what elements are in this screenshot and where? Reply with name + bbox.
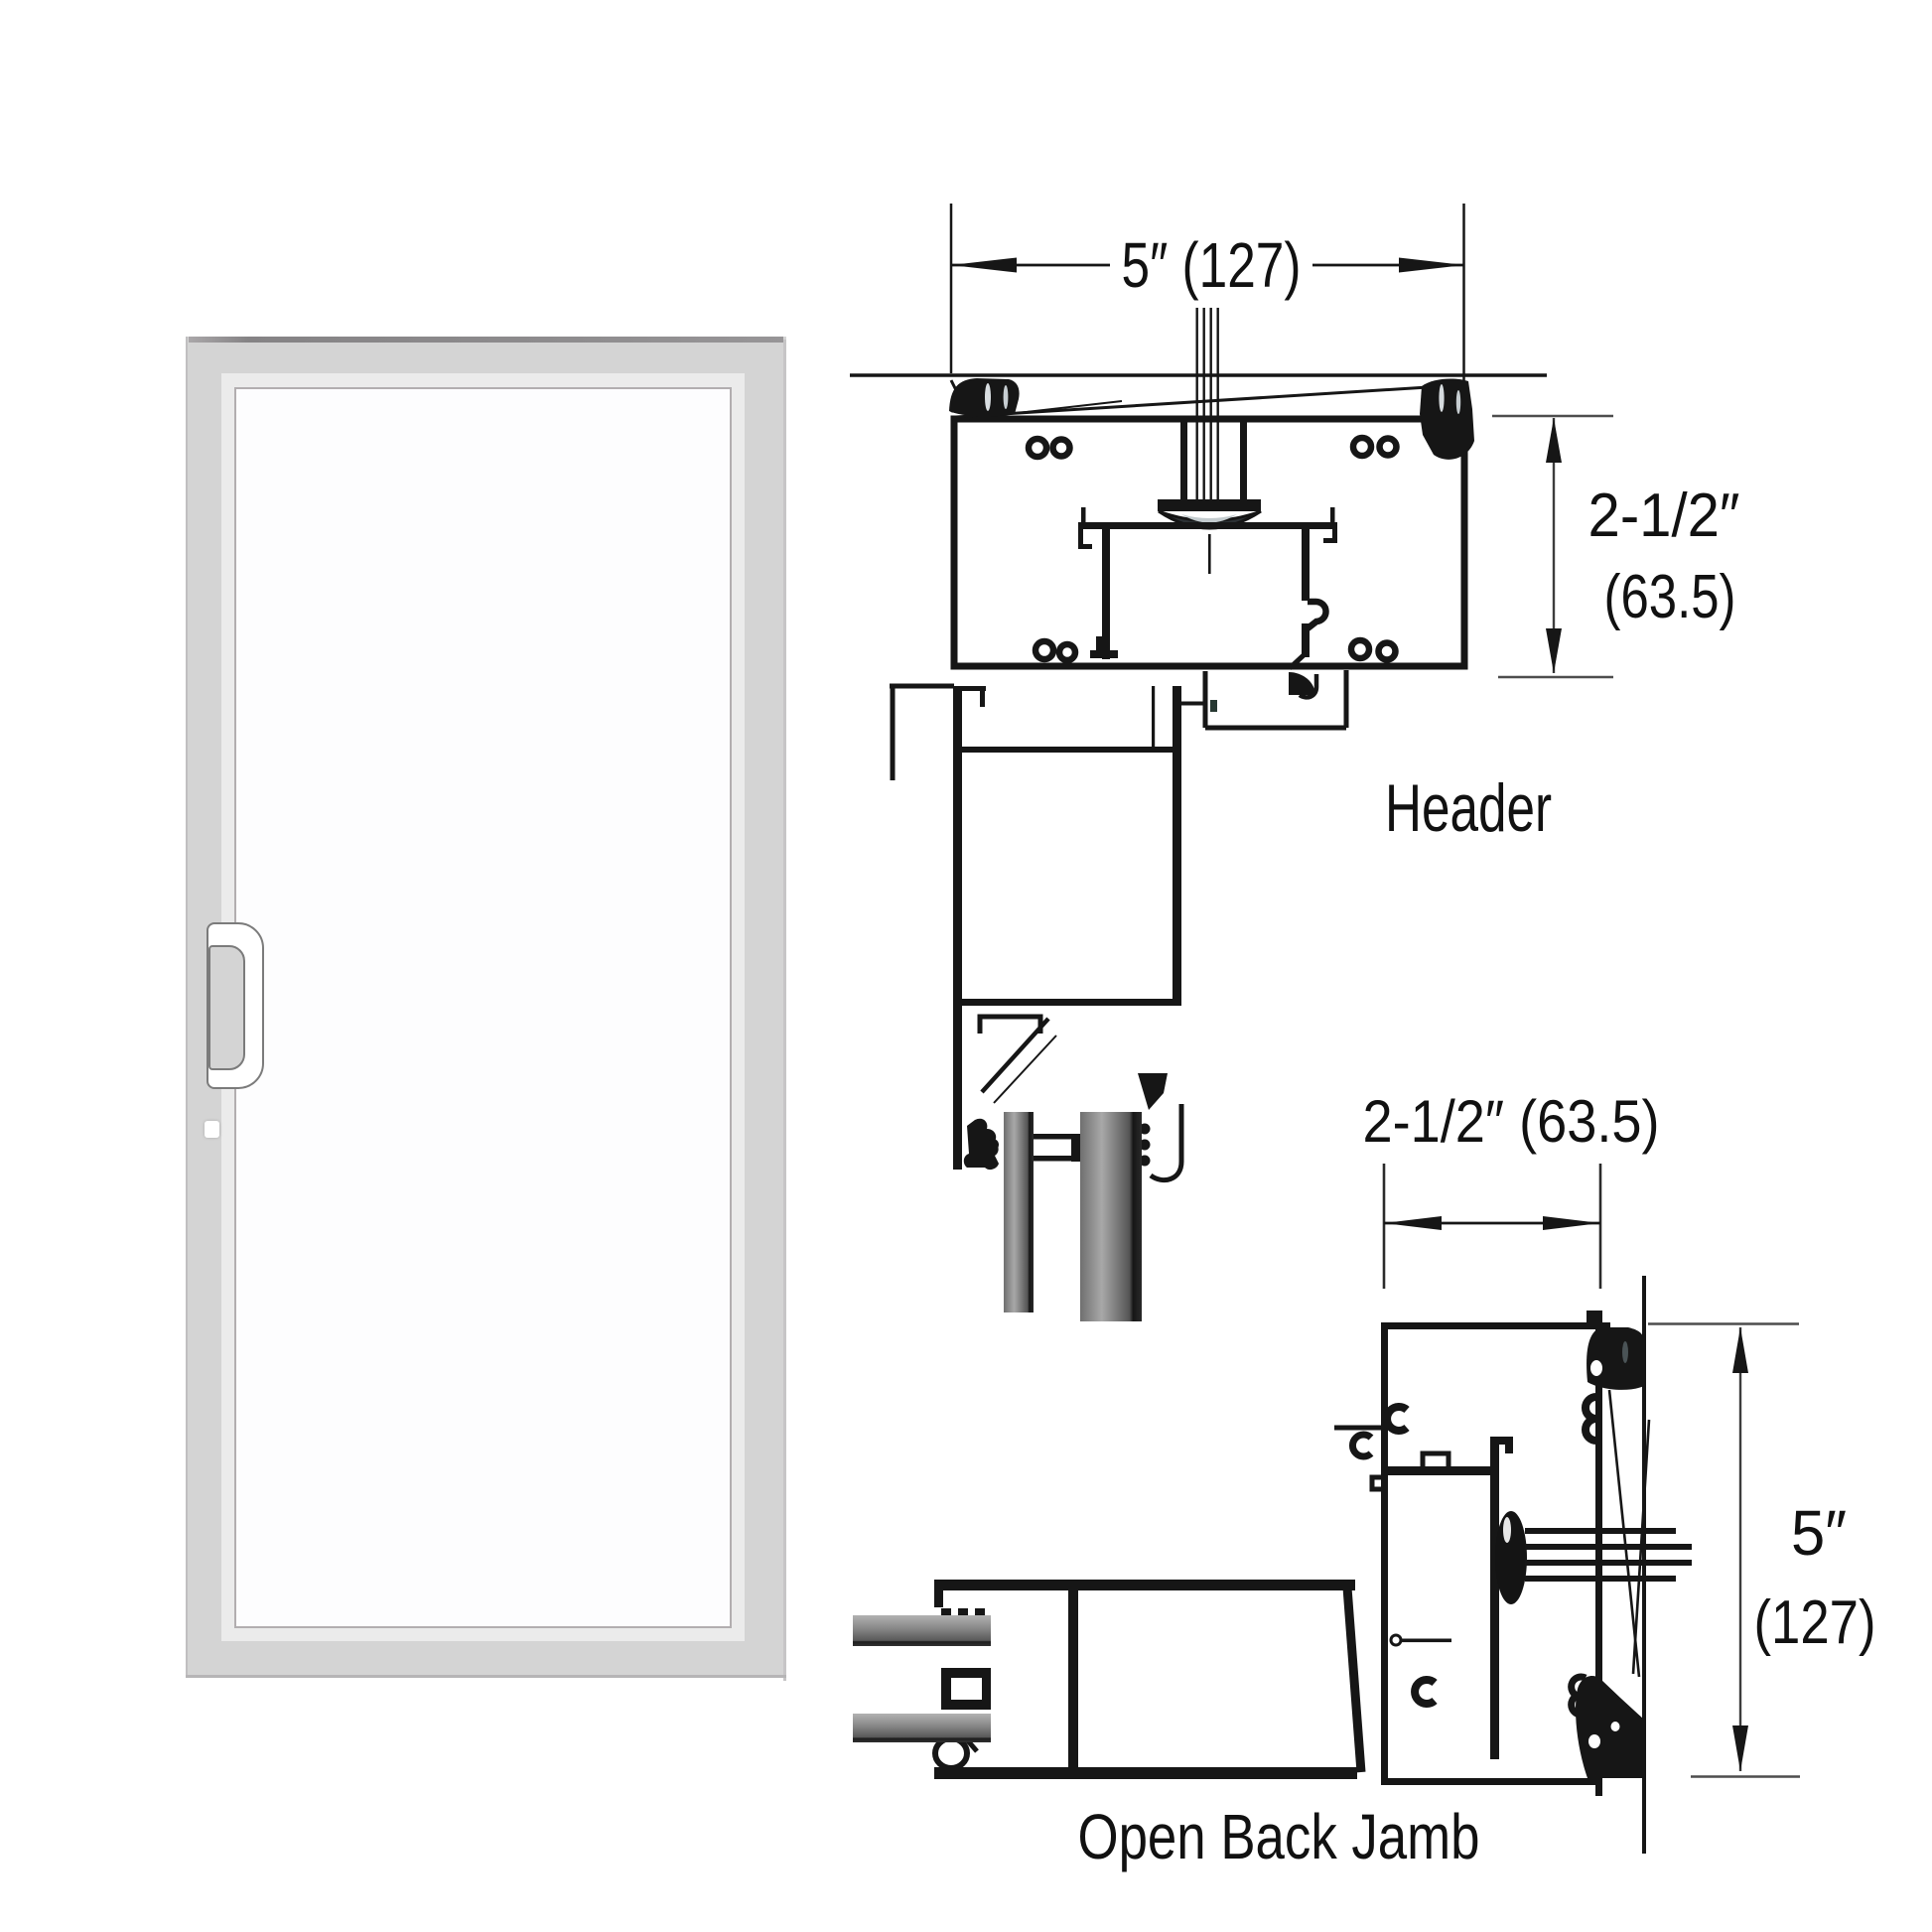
svg-text:5″ (127): 5″ (127) <box>1122 229 1302 301</box>
svg-text:Header: Header <box>1385 770 1552 846</box>
svg-text:Open Back Jamb: Open Back Jamb <box>1078 1801 1480 1872</box>
svg-text:2-1/2″ (63.5): 2-1/2″ (63.5) <box>1363 1088 1660 1155</box>
svg-text:5″: 5″ <box>1791 1497 1847 1569</box>
svg-text:(127): (127) <box>1754 1588 1876 1657</box>
svg-text:(63.5): (63.5) <box>1604 563 1736 631</box>
svg-text:2-1/2″: 2-1/2″ <box>1588 482 1740 550</box>
